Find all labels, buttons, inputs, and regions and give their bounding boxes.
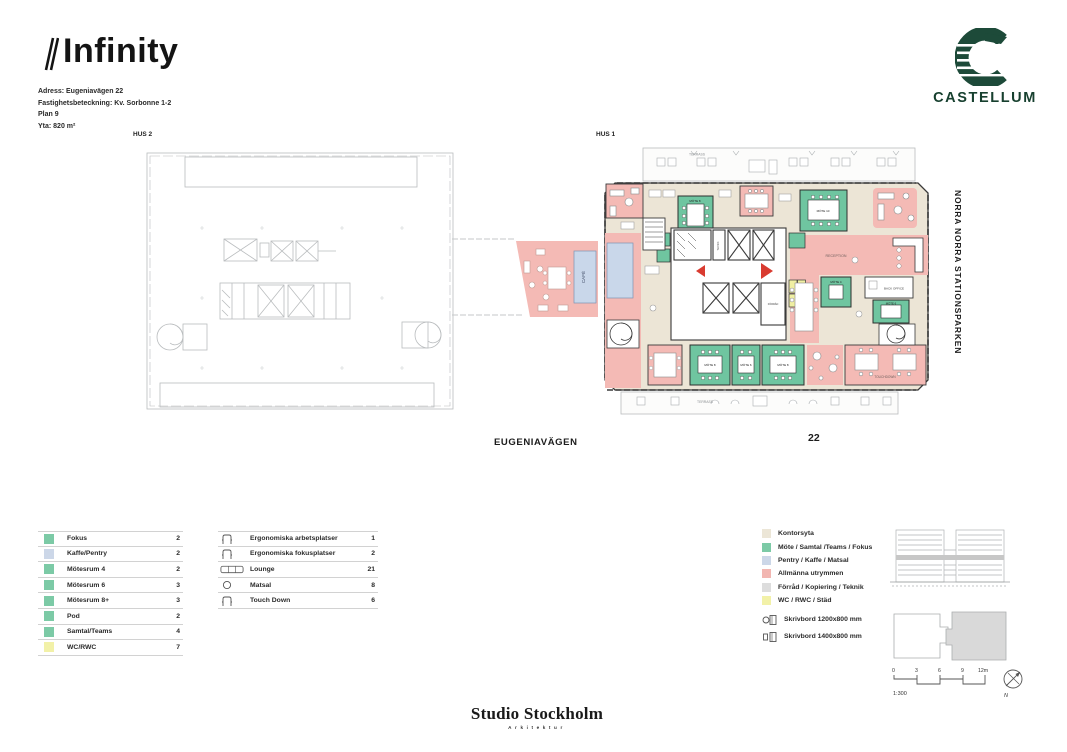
north-label: N: [1004, 693, 1008, 699]
address-block: Adress: Eugeniavägen 22 Fastighetsbeteck…: [38, 86, 171, 132]
chair-icon: [220, 533, 234, 545]
legend-room-count: 2: [162, 613, 180, 620]
chair-icon: [220, 548, 234, 560]
legend-room-row: WC/RWC7: [38, 640, 183, 656]
meeting-room-s3: MÖTE 8: [762, 345, 804, 385]
legend-room-count: 4: [162, 628, 180, 635]
north-arrow-icon: N: [998, 666, 1028, 700]
legend-zone-label: Förråd / Kopiering / Teknik: [778, 584, 864, 591]
back-office-room: BACK OFFICE: [865, 277, 913, 298]
legend-workplace-label: Lounge: [250, 566, 357, 573]
legend-zone-row: WC / RWC / Städ: [762, 594, 902, 607]
spiral-stair-east: [879, 324, 915, 345]
legend-room-row: Mötesrum 8+3: [38, 593, 183, 609]
address-line: Adress: Eugeniavägen 22: [38, 86, 171, 98]
meeting-room-nw: MÖTE 8: [678, 196, 713, 233]
hus1-terrace-bottom: TERRASS: [621, 392, 898, 414]
spiral-stair-west: [607, 320, 639, 348]
room-color-chip: [44, 611, 54, 621]
key-plan: [894, 612, 1006, 660]
legend-workplace-row: Lounge 21: [218, 562, 378, 578]
zone-color-chip: [762, 583, 771, 592]
legend-room-count: 7: [162, 644, 180, 651]
legend-room-label: Mötesrum 4: [67, 566, 162, 573]
scale-ratio: 1:300: [893, 691, 907, 697]
legend-workplace-label: Matsal: [250, 582, 357, 589]
legend-room-count: 2: [162, 550, 180, 557]
room-color-chip: [44, 564, 54, 574]
legend-zone-label: WC / RWC / Städ: [778, 597, 832, 604]
meeting-room-e4: MÖTE 4: [821, 277, 851, 307]
open-stair-west: [643, 218, 665, 250]
legend-room-row: Pod2: [38, 609, 183, 625]
legend-room-label: Pod: [67, 613, 162, 620]
room-color-chip: [44, 642, 54, 652]
legend-zone-row: Pentry / Kaffe / Matsal: [762, 554, 902, 567]
legend-workplace-count: 21: [357, 566, 375, 573]
reception-label: RECEPTION: [826, 254, 847, 258]
room-label: MÖTE 4: [830, 280, 841, 284]
hus1-highlight: [946, 612, 1006, 660]
cafe-label: CAFÉ: [580, 271, 586, 283]
legend-workplace-label: Touch Down: [250, 597, 357, 604]
legend-workplace-row: Touch Down 6: [218, 593, 378, 609]
building-section-and-keyplan: [888, 526, 1012, 666]
seating-zone-south: [807, 345, 843, 385]
legend-zone-label: Kontorsyta: [778, 530, 814, 537]
room-label: MÖTE 6: [740, 363, 751, 367]
desk-1200-icon: [762, 613, 778, 627]
scale-tick-6: 6: [938, 668, 941, 674]
legend-zone-row: Möte / Samtal /Teams / Fokus: [762, 540, 902, 553]
title-block: Infinity: [37, 34, 178, 71]
building-section: [890, 530, 1010, 586]
meeting-room-s1: MÖTE 8: [690, 345, 730, 385]
legend-workplace-label: Ergonomiska fokusplatser: [250, 550, 357, 557]
castellum-logo: CASTELLUM: [930, 28, 1040, 106]
legend-room-label: Fokus: [67, 535, 162, 542]
zone-color-chip: [762, 596, 771, 605]
desk-1400-icon: [762, 630, 778, 644]
zone-color-chip: [762, 569, 771, 578]
legend-room-count: 2: [162, 535, 180, 542]
legend-zone-label: Allmänna utrymmen: [778, 570, 843, 577]
hus1-terrace-top: TERRASS: [643, 148, 915, 181]
legend-workplace-count: 1: [357, 535, 375, 542]
meeting-room-s2: MÖTE 6: [732, 345, 760, 385]
street-number: 22: [808, 432, 820, 444]
legend-room-row: Fokus2: [38, 531, 183, 547]
scale-tick-9: 9: [961, 668, 964, 674]
hus2-label: HUS 2: [133, 131, 152, 138]
legend-room-row: Mötesrum 63: [38, 578, 183, 594]
legend-rooms-table: Fokus2 Kaffe/Pentry2 Mötesrum 42 Mötesru…: [38, 531, 183, 656]
terrace-top-label: TERRASS: [689, 153, 706, 157]
architect-logo: Studio Stockholm Arkitektur: [437, 704, 637, 730]
infinity-slash-icon: [37, 37, 59, 71]
legend-workplace-count: 6: [357, 597, 375, 604]
legend-room-row: Mötesrum 42: [38, 562, 183, 578]
legend-room-label: Kaffe/Pentry: [67, 550, 162, 557]
legend-zone-label: Möte / Samtal /Teams / Fokus: [778, 544, 872, 551]
legend-zone-label: Pentry / Kaffe / Matsal: [778, 557, 849, 564]
legend-zone-row: Allmänna utrymmen: [762, 567, 902, 580]
castellum-wordmark: CASTELLUM: [930, 90, 1040, 106]
touchdown-label: TOUCHDOWN: [874, 375, 896, 379]
link-bridge: CAFÉ: [452, 227, 598, 325]
meeting-room-e6: MÖTE 6: [873, 300, 909, 323]
meeting-room-10: MÖTE 10: [800, 190, 847, 231]
forrad-label: FÖRRÅD: [768, 303, 779, 306]
legend-desk-label: Skrivbord 1200x800 mm: [784, 616, 862, 623]
hus1-plan: TERRASS TERRASS: [593, 138, 935, 416]
legend-room-row: Samtal/Teams4: [38, 625, 183, 641]
legend-workplaces-table: Ergonomiska arbetsplatser 1 Ergonomiska …: [218, 531, 378, 609]
studio-stockholm-subtitle: Arkitektur: [437, 725, 637, 730]
hus2-plan: [140, 140, 460, 412]
chair-icon: [220, 595, 234, 607]
legend-workplace-label: Ergonomiska arbetsplatser: [250, 535, 357, 542]
samtal-room: [657, 249, 670, 262]
room-label: MÖTE 8: [689, 199, 700, 203]
room-color-chip: [44, 549, 54, 559]
legend-workplace-row: Ergonomiska arbetsplatser 1: [218, 531, 378, 547]
studio-stockholm-wordmark: Studio Stockholm: [437, 704, 637, 724]
zone-color-chip: [762, 543, 771, 552]
matsal-room-sw: [648, 345, 682, 385]
legend-desk-label: Skrivbord 1400x800 mm: [784, 633, 862, 640]
room-color-chip: [44, 596, 54, 606]
teknik-label: TEKNIK: [717, 241, 720, 250]
pod-room-e: [789, 233, 805, 248]
scale-tick-3: 3: [915, 668, 918, 674]
legend-room-label: Mötesrum 8+: [67, 597, 162, 604]
sofa-icon: [220, 563, 244, 575]
zone-color-chip: [762, 529, 771, 538]
legend-zone-row: Kontorsyta: [762, 527, 902, 540]
scale-bar-line: [894, 675, 985, 684]
legend-zone-row: Förråd / Kopiering / Teknik: [762, 581, 902, 594]
legend-room-label: Mötesrum 6: [67, 582, 162, 589]
scale-bar: 0 3 6 9 12m 1:300: [890, 664, 990, 700]
legend-room-count: 3: [162, 582, 180, 589]
stool-icon: [220, 579, 234, 591]
terrace-bottom-label: TERRASS: [697, 400, 714, 404]
park-street-label: NORRA NORRA STATIONSPARKEN: [953, 190, 963, 405]
castellum-c-icon: [955, 28, 1015, 86]
room-label: MÖTE 10: [817, 209, 830, 213]
page-title: Infinity: [63, 34, 178, 68]
scale-tick-0: 0: [892, 668, 895, 674]
property-line: Fastighetsbeteckning: Kv. Sorbonne 1-2: [38, 98, 171, 110]
floor-line: Plan 9: [38, 109, 171, 121]
street-label: EUGENIAVÄGEN: [494, 437, 578, 448]
back-office-label: BACK OFFICE: [884, 287, 904, 291]
room-color-chip: [44, 580, 54, 590]
room-label: MÖTE 8: [777, 363, 788, 367]
legend-workplace-count: 2: [357, 550, 375, 557]
legend-zones: Kontorsyta Möte / Samtal /Teams / Fokus …: [762, 527, 902, 607]
pantry-island: [607, 243, 633, 298]
legend-room-label: Samtal/Teams: [67, 628, 162, 635]
legend-room-count: 3: [162, 597, 180, 604]
legend-room-row: Kaffe/Pentry2: [38, 547, 183, 563]
hus1-core: TEKNIK FÖRRÅD: [671, 228, 786, 340]
legend-workplace-row: Ergonomiska fokusplatser 2: [218, 547, 378, 563]
legend-room-label: WC/RWC: [67, 644, 162, 651]
zone-color-chip: [762, 556, 771, 565]
hus1-label: HUS 1: [596, 131, 615, 138]
legend-workplace-count: 8: [357, 582, 375, 589]
room-color-chip: [44, 627, 54, 637]
room-label: MÖTE 8: [704, 363, 715, 367]
highlighted-floor: [896, 555, 1004, 560]
room-color-chip: [44, 534, 54, 544]
room-label: MÖTE 6: [886, 302, 897, 306]
legend-room-count: 2: [162, 566, 180, 573]
scale-tick-12: 12m: [978, 668, 988, 674]
floorplan-sheet: Infinity Adress: Eugeniavägen 22 Fastigh…: [0, 0, 1067, 752]
legend-workplace-row: Matsal 8: [218, 578, 378, 594]
